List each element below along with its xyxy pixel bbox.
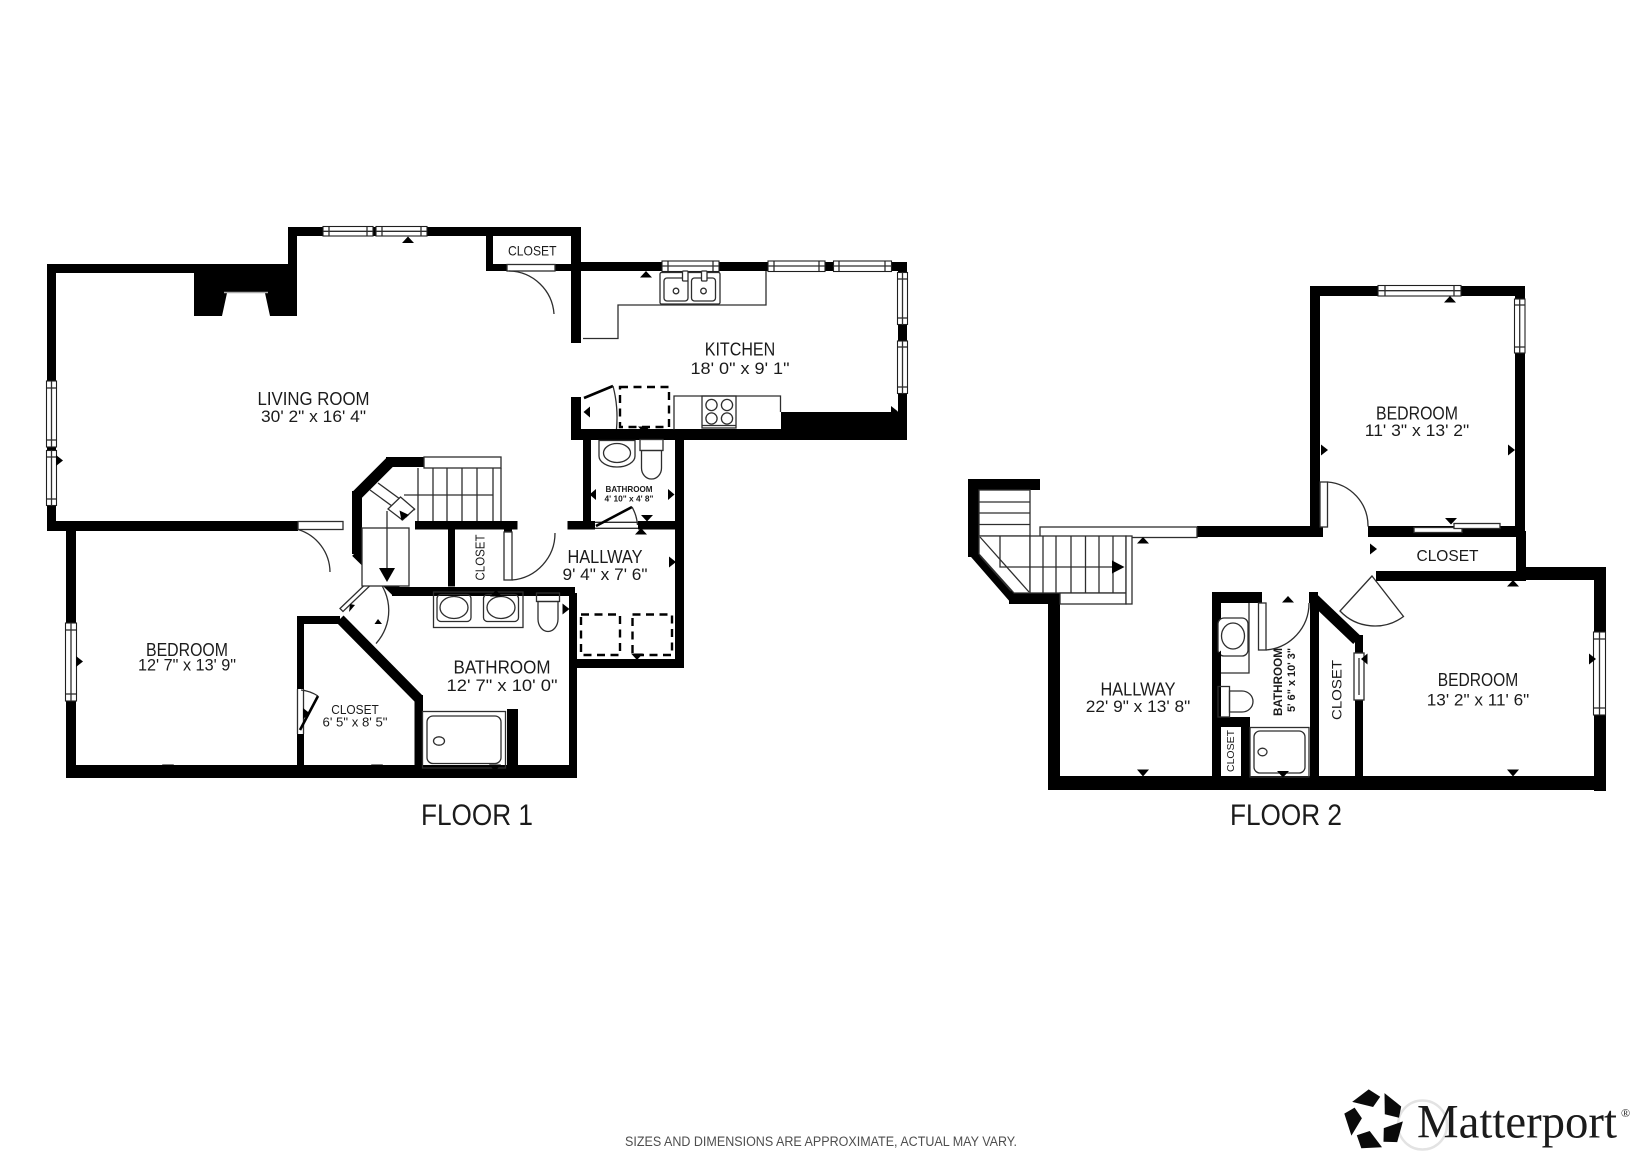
svg-text:KITCHEN: KITCHEN <box>705 340 776 360</box>
svg-text:22' 9" x 13' 8": 22' 9" x 13' 8" <box>1086 698 1191 716</box>
svg-text:BATHROOM: BATHROOM <box>454 658 551 678</box>
svg-text:5' 6" x 10' 3": 5' 6" x 10' 3" <box>1286 648 1298 712</box>
svg-text:CLOSET: CLOSET <box>473 534 488 580</box>
svg-text:9' 4" x 7' 6": 9' 4" x 7' 6" <box>563 566 648 584</box>
svg-text:CLOSET: CLOSET <box>1417 548 1479 565</box>
svg-text:BEDROOM: BEDROOM <box>1376 404 1458 424</box>
svg-text:LIVING ROOM: LIVING ROOM <box>258 389 370 409</box>
svg-text:CLOSET: CLOSET <box>1330 660 1345 720</box>
svg-text:13' 2" x 11' 6": 13' 2" x 11' 6" <box>1427 692 1530 710</box>
svg-text:30' 2" x 16' 4": 30' 2" x 16' 4" <box>261 408 366 426</box>
svg-text:18' 0" x 9' 1": 18' 0" x 9' 1" <box>691 360 790 378</box>
svg-text:FLOOR 2: FLOOR 2 <box>1230 799 1342 832</box>
svg-text:FLOOR 1: FLOOR 1 <box>421 799 533 832</box>
svg-text:®: ® <box>1621 1106 1630 1120</box>
svg-text:6' 5" x 8' 5": 6' 5" x 8' 5" <box>323 716 388 730</box>
svg-text:CLOSET: CLOSET <box>1226 730 1237 772</box>
svg-text:4' 10" x 4' 8": 4' 10" x 4' 8" <box>605 495 654 504</box>
svg-text:HALLWAY: HALLWAY <box>1101 680 1176 700</box>
svg-text:HALLWAY: HALLWAY <box>568 547 643 567</box>
svg-text:Matterport: Matterport <box>1417 1096 1618 1149</box>
svg-text:BATHROOM: BATHROOM <box>606 484 653 494</box>
svg-text:BEDROOM: BEDROOM <box>1438 670 1519 690</box>
svg-text:12' 7" x 13' 9": 12' 7" x 13' 9" <box>138 657 236 675</box>
svg-text:CLOSET: CLOSET <box>508 242 557 258</box>
svg-text:11' 3" x 13' 2": 11' 3" x 13' 2" <box>1365 422 1470 440</box>
svg-text:SIZES AND DIMENSIONS ARE APPRO: SIZES AND DIMENSIONS ARE APPROXIMATE, AC… <box>625 1134 1017 1149</box>
svg-text:12' 7" x 10' 0": 12' 7" x 10' 0" <box>447 677 558 695</box>
svg-text:BATHROOM: BATHROOM <box>1271 648 1285 716</box>
